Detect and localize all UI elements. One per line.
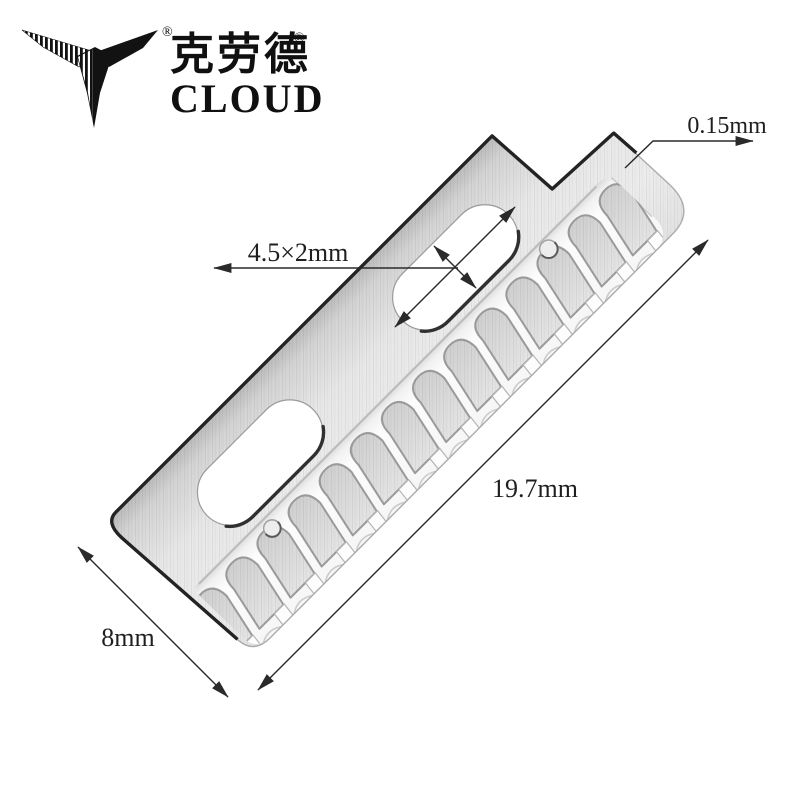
product-illustration-page: ® 克劳德 ® CLOUD [0, 0, 800, 800]
blade-illustration [98, 71, 698, 671]
brand-logo: ® 克劳德 ® CLOUD [22, 25, 324, 128]
brand-name-chinese: 克劳德 [170, 30, 311, 79]
blade-brushed-texture [106, 71, 697, 662]
thickness-dimension-label: 0.15mm [687, 113, 767, 139]
hole-dimension-label: 4.5×2mm [248, 238, 349, 267]
brand-registered-mark: ® [294, 31, 305, 46]
bird-logo-icon [22, 30, 158, 128]
length-dimension-label: 19.7mm [492, 474, 578, 503]
blade-diagram-canvas: ® 克劳德 ® CLOUD [0, 0, 800, 800]
width-dimension-label: 8mm [101, 623, 154, 652]
brand-name-english: CLOUD [170, 76, 324, 121]
